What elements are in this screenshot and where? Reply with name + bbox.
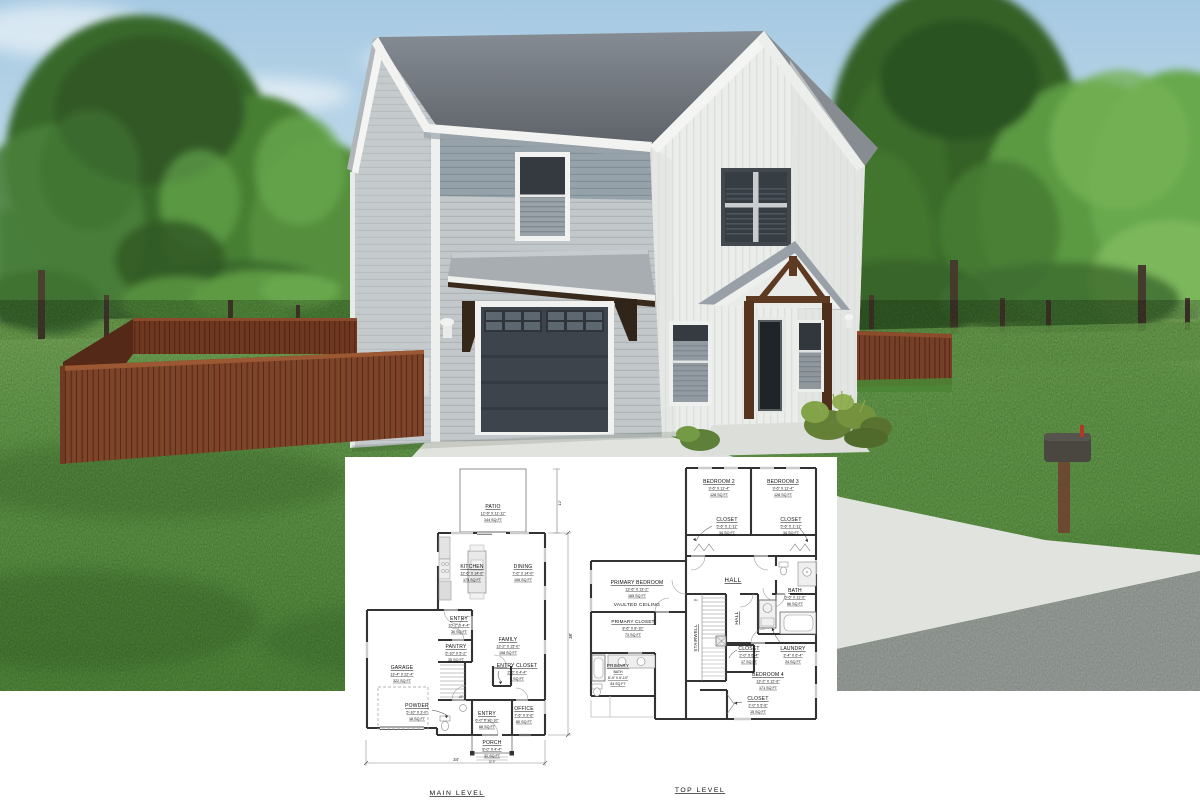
svg-text:CLOSET: CLOSET — [716, 517, 737, 523]
svg-text:PANTRY: PANTRY — [445, 644, 466, 650]
svg-text:BEDROOM 2: BEDROOM 2 — [703, 479, 735, 485]
svg-text:PATIO: PATIO — [485, 504, 500, 510]
svg-text:5′-6″ X 1′-11″: 5′-6″ X 1′-11″ — [717, 524, 739, 528]
svg-text:9 SQ FT: 9 SQ FT — [510, 677, 525, 681]
svg-text:15 SQ FT: 15 SQ FT — [750, 710, 767, 714]
svg-text:DINING: DINING — [514, 564, 533, 570]
svg-text:CLOSET: CLOSET — [738, 646, 759, 652]
svg-text:7′-6″ X 9′-6″: 7′-6″ X 9′-6″ — [514, 713, 534, 717]
svg-text:12': 12' — [557, 500, 562, 505]
svg-text:7′-6″ X 14′-0″: 7′-6″ X 14′-0″ — [512, 571, 534, 575]
svg-text:6′-0″ X 10′-10″: 6′-0″ X 10′-10″ — [475, 718, 499, 722]
svg-text:PRIMARY BEDROOM: PRIMARY BEDROOM — [611, 580, 664, 586]
svg-text:UP: UP — [459, 695, 463, 699]
svg-text:HALL: HALL — [734, 611, 740, 624]
svg-text:34': 34' — [453, 757, 459, 762]
svg-text:TOP LEVEL: TOP LEVEL — [675, 787, 725, 794]
svg-text:HALL: HALL — [724, 578, 741, 584]
svg-text:STAIRWELL: STAIRWELL — [693, 624, 698, 651]
svg-text:165 SQ FT: 165 SQ FT — [628, 594, 647, 598]
svg-text:68 SQ FT: 68 SQ FT — [479, 725, 496, 729]
svg-text:BATH: BATH — [613, 670, 623, 674]
svg-text:BEDROOM 3: BEDROOM 3 — [767, 479, 799, 485]
svg-text:198 SQ FT: 198 SQ FT — [499, 651, 518, 655]
svg-text:12′-6″ X 11′-11″: 12′-6″ X 11′-11″ — [481, 511, 506, 515]
svg-text:5′-6″ X 11′-0″: 5′-6″ X 11′-0″ — [785, 595, 807, 599]
svg-text:322 SQ FT: 322 SQ FT — [393, 679, 412, 683]
svg-text:CLOSET: CLOSET — [747, 696, 768, 702]
svg-text:5′-6″ X 1′-11″: 5′-6″ X 1′-11″ — [781, 524, 803, 528]
svg-text:PORCH: PORCH — [482, 740, 501, 746]
svg-text:73 SQ FT: 73 SQ FT — [625, 633, 642, 637]
svg-text:13′-2″ X 15′-0″: 13′-2″ X 15′-0″ — [496, 644, 520, 648]
svg-text:13′-2″ X 12′-6″: 13′-2″ X 12′-6″ — [756, 679, 780, 683]
svg-text:BEDROOM 4: BEDROOM 4 — [752, 672, 784, 678]
svg-text:66 SQ FT: 66 SQ FT — [787, 602, 804, 606]
svg-text:9′-6″ X 11′-4″: 9′-6″ X 11′-4″ — [709, 486, 731, 490]
svg-text:2′-0″ X 6′-4″: 2′-0″ X 6′-4″ — [739, 653, 759, 657]
svg-text:9′-6″ X 11′-4″: 9′-6″ X 11′-4″ — [773, 486, 795, 490]
svg-text:80 SQ FT: 80 SQ FT — [516, 720, 533, 724]
svg-text:34 SQ FT: 34 SQ FT — [719, 531, 736, 535]
svg-text:3′-4″ X 6′-4″: 3′-4″ X 6′-4″ — [783, 653, 803, 657]
svg-text:POWDER: POWDER — [405, 703, 429, 709]
svg-text:8′-4″ X 6′-10″: 8′-4″ X 6′-10″ — [608, 676, 629, 680]
svg-text:10′-2″ X 4′-4″: 10′-2″ X 4′-4″ — [448, 623, 470, 627]
svg-text:GARAGE: GARAGE — [391, 665, 414, 671]
svg-text:106 SQ FT: 106 SQ FT — [514, 578, 533, 582]
svg-text:BATH: BATH — [788, 588, 802, 594]
svg-text:24 SQ FT: 24 SQ FT — [785, 660, 802, 664]
svg-text:MAIN LEVEL: MAIN LEVEL — [429, 790, 484, 797]
svg-text:13′-6″ X 13′-2″: 13′-6″ X 13′-2″ — [625, 587, 649, 591]
svg-text:12′-6″ X 14′-0″: 12′-6″ X 14′-0″ — [460, 571, 484, 575]
svg-text:PRIMARY CLOSET: PRIMARY CLOSET — [611, 619, 654, 624]
svg-text:ENTRY CLOSET: ENTRY CLOSET — [497, 663, 538, 669]
svg-text:FAMILY: FAMILY — [499, 637, 518, 643]
svg-text:2′-0″ X 4′-4″: 2′-0″ X 4′-4″ — [507, 670, 527, 674]
svg-text:144 SQ FT: 144 SQ FT — [484, 518, 503, 522]
svg-text:175 SQ FT: 175 SQ FT — [463, 578, 482, 582]
svg-text:12′-0″: 12′-0″ — [489, 760, 496, 764]
svg-text:ENTRY: ENTRY — [450, 616, 468, 622]
svg-text:128 SQ FT: 128 SQ FT — [710, 493, 729, 497]
svg-text:34 SQ FT: 34 SQ FT — [783, 531, 800, 535]
svg-text:KITCHEN: KITCHEN — [460, 564, 484, 570]
svg-text:8′-6″ X 8′-10″: 8′-6″ X 8′-10″ — [622, 626, 644, 630]
svg-text:171 SQ FT: 171 SQ FT — [759, 686, 778, 690]
svg-text:84 SQ FT: 84 SQ FT — [610, 682, 626, 686]
svg-text:5′-10″ X 5′-2″: 5′-10″ X 5′-2″ — [445, 651, 467, 655]
svg-text:30 SQ FT: 30 SQ FT — [451, 630, 468, 634]
svg-text:35 SQ FT: 35 SQ FT — [448, 658, 465, 662]
svg-text:17 SQ FT: 17 SQ FT — [741, 660, 758, 664]
svg-text:LAUNDRY: LAUNDRY — [780, 646, 806, 652]
svg-text:32 SQ FT: 32 SQ FT — [484, 754, 501, 758]
svg-text:18 SQ FT: 18 SQ FT — [409, 717, 426, 721]
svg-text:VAULTED CEILING: VAULTED CEILING — [614, 602, 660, 608]
svg-text:38': 38' — [568, 633, 573, 639]
svg-text:5′-10″ X 3′-0″: 5′-10″ X 3′-0″ — [406, 710, 428, 714]
svg-text:PRIMARY: PRIMARY — [607, 663, 629, 668]
svg-text:8′-0″ X 4′-4″: 8′-0″ X 4′-4″ — [482, 747, 502, 751]
svg-text:OFFICE: OFFICE — [514, 706, 534, 712]
svg-text:CLOSET: CLOSET — [780, 517, 801, 523]
svg-text:Dn: Dn — [694, 598, 698, 602]
svg-text:13′-4″ X 22′-4″: 13′-4″ X 22′-4″ — [390, 672, 414, 676]
svg-text:128 SQ FT: 128 SQ FT — [774, 493, 793, 497]
svg-text:2′-0″ X 5′-6″: 2′-0″ X 5′-6″ — [748, 703, 768, 707]
svg-text:ENTRY: ENTRY — [478, 711, 496, 717]
